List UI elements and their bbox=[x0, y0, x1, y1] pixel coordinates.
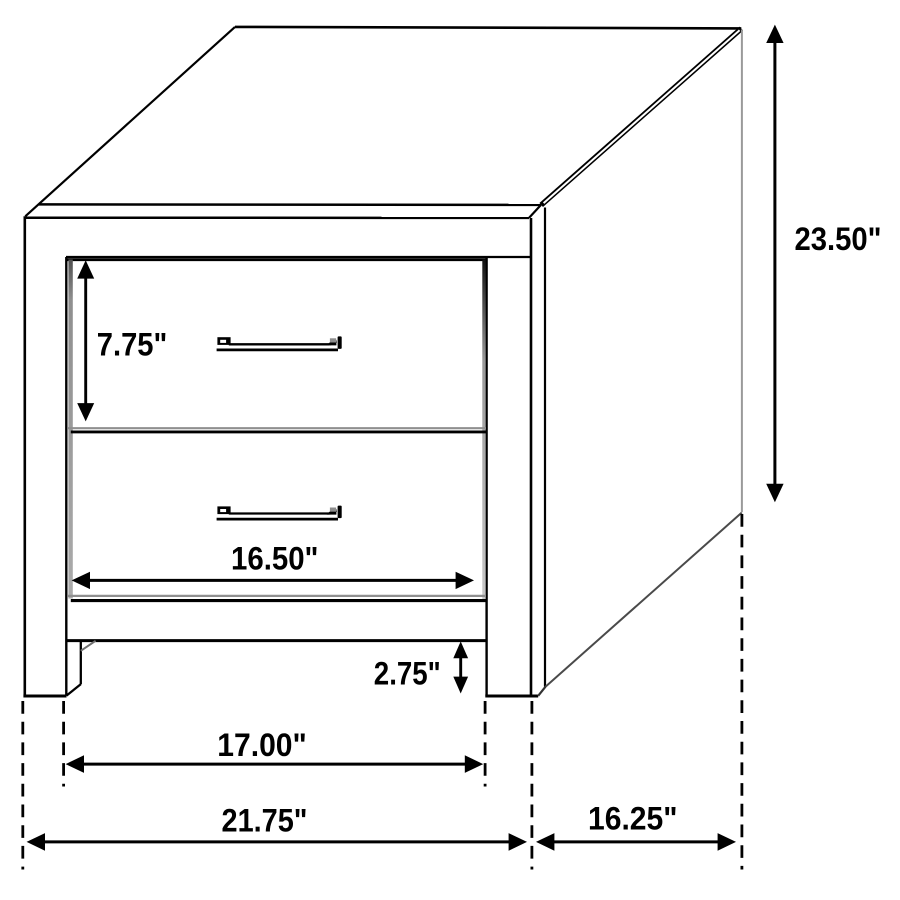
svg-text:23.50": 23.50" bbox=[795, 221, 882, 257]
svg-text:21.75": 21.75" bbox=[222, 803, 308, 839]
svg-text:17.00": 17.00" bbox=[217, 727, 306, 763]
svg-text:7.75": 7.75" bbox=[97, 327, 168, 363]
svg-text:16.50": 16.50" bbox=[231, 541, 319, 577]
svg-text:16.25": 16.25" bbox=[588, 801, 678, 837]
svg-text:2.75": 2.75" bbox=[374, 656, 441, 692]
